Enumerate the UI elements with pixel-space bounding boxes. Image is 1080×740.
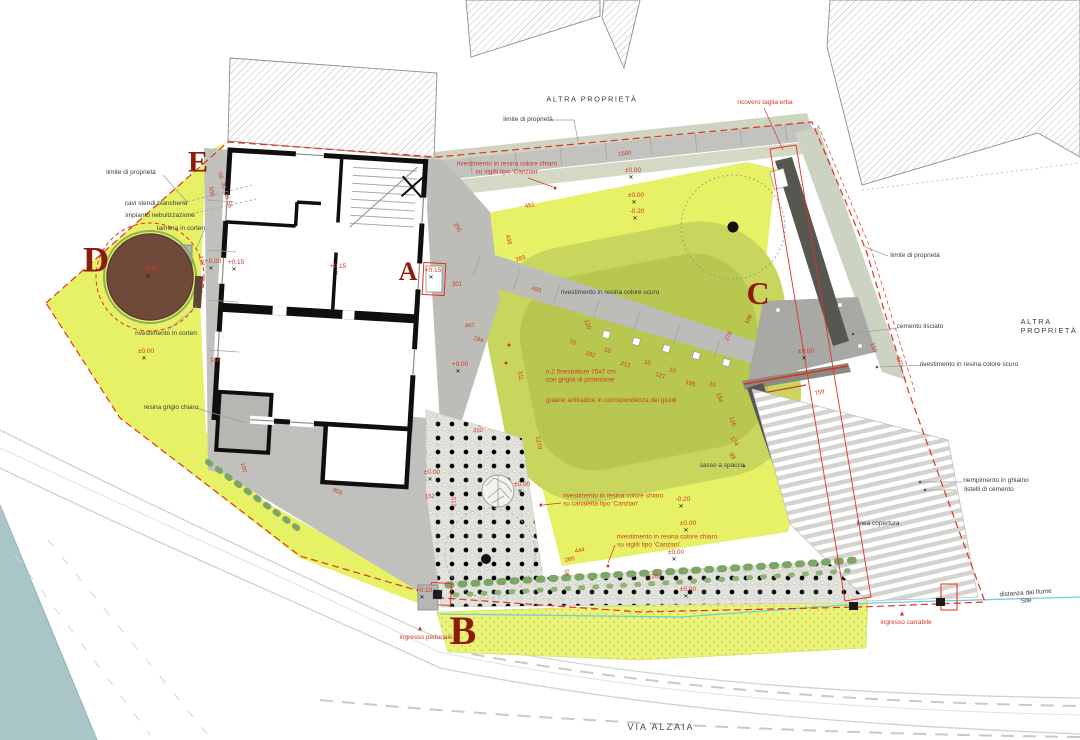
site-plan-page: VIA ALZAIA ALTRA PROPRIETÀ ALTRA PROPRIE… bbox=[0, 0, 1080, 740]
building-lower-room bbox=[322, 424, 409, 487]
site-plan-drawing bbox=[0, 0, 1080, 740]
planted-strip-south bbox=[437, 598, 868, 660]
